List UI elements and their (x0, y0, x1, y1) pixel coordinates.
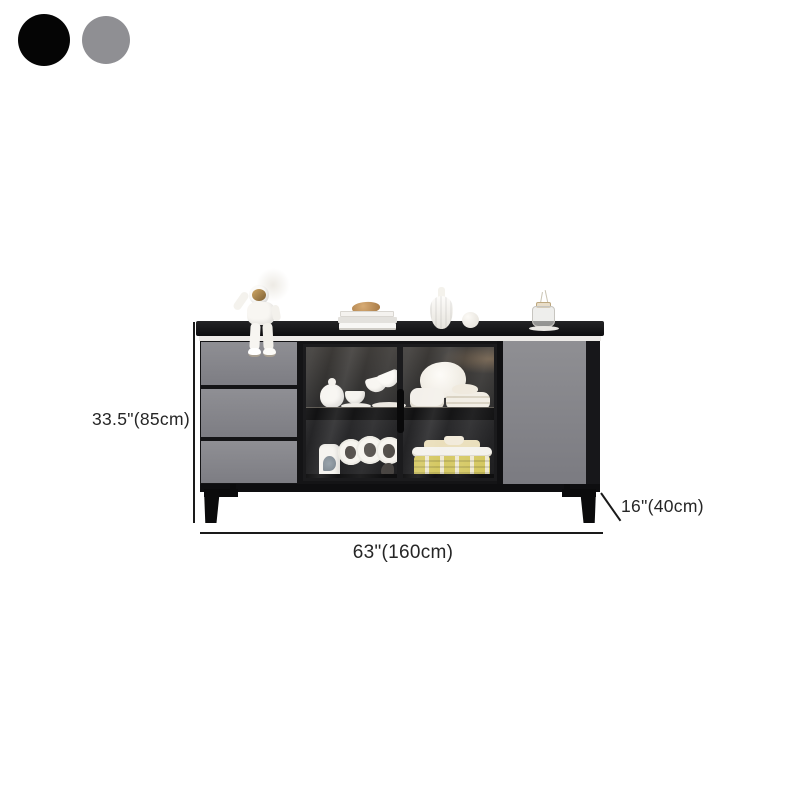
cabinet-right-edge (586, 341, 600, 484)
astronaut-figurine (230, 264, 290, 364)
astronaut-arm (271, 304, 282, 321)
right-door-panel (503, 341, 586, 484)
right-leg-post (580, 489, 596, 523)
color-swatch-gray[interactable] (82, 16, 130, 64)
width-dimension-label: 63"(160cm) (328, 542, 478, 564)
astronaut-shoe (263, 348, 276, 357)
width-dimension-line (200, 532, 603, 534)
depth-dimension-line (600, 492, 621, 521)
drawer-middle (201, 389, 301, 437)
glass-jar (532, 306, 555, 327)
height-dimension-label: 33.5"(85cm) (58, 409, 190, 430)
cabinet-bottom-band (200, 484, 600, 492)
left-leg-post (204, 489, 220, 523)
right-leg-hook (564, 484, 570, 491)
astronaut-leg (262, 323, 273, 350)
height-dimension-line (193, 322, 195, 523)
door-handle (397, 389, 404, 433)
stacked-book (339, 323, 396, 330)
depth-dimension-label: 16"(40cm) (621, 496, 704, 517)
product-image-page: 33.5"(85cm) 63"(160cm) 16"(40cm) (0, 0, 800, 800)
decorative-ball (462, 312, 479, 328)
glass-jar-saucer (529, 326, 559, 331)
drawer-bottom (201, 441, 301, 483)
astronaut-visor (252, 289, 266, 301)
left-leg-hook (230, 484, 236, 491)
astronaut-shoe (248, 348, 261, 357)
astronaut-torso (247, 302, 275, 325)
color-swatch-black[interactable] (18, 14, 70, 66)
glass-door-right (400, 344, 497, 481)
astronaut-leg (249, 323, 260, 350)
glass-door-left (303, 344, 400, 481)
